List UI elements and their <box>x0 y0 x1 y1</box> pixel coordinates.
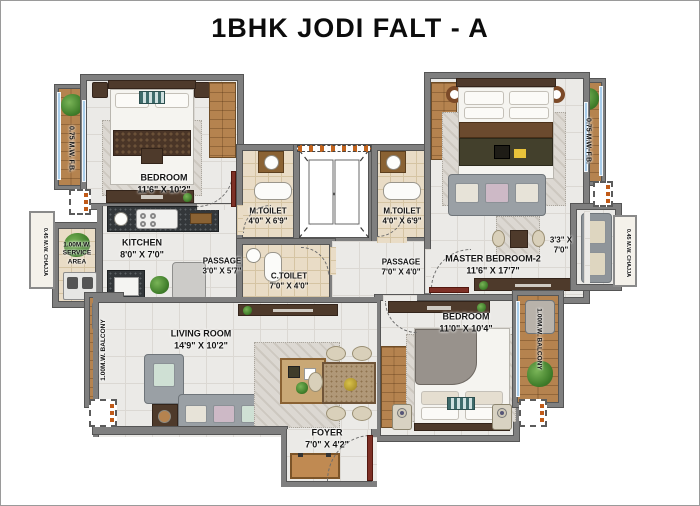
plant-icon <box>296 382 308 394</box>
chair <box>308 372 323 392</box>
window-strip <box>82 100 86 182</box>
door-leaf <box>231 171 236 207</box>
laptop <box>494 145 510 159</box>
chajja-left-label: 0.45 M.W. CHAJJA <box>41 228 47 276</box>
burner <box>150 213 156 219</box>
nightstand <box>92 82 108 98</box>
vanity <box>380 151 406 173</box>
toilet-wc <box>254 182 292 200</box>
m-toilet-right-label: M.TOILET4'0" X 6'9" <box>383 207 422 228</box>
cushion <box>515 183 539 203</box>
service-area-label: 1.00M.W.SERVICEAREA <box>63 241 91 266</box>
pillow <box>509 107 549 119</box>
duct-box <box>89 399 117 427</box>
duct-box <box>593 181 613 207</box>
balcony-right-label: 1.00M.W. BALCONY <box>535 308 542 369</box>
washer-door <box>67 277 78 289</box>
sink <box>386 155 401 170</box>
chair <box>492 230 505 247</box>
accent-pillow <box>139 91 165 104</box>
wardrobe <box>209 82 236 158</box>
tv-console <box>238 304 338 316</box>
washer-door <box>82 277 93 289</box>
bed-blanket <box>415 329 477 385</box>
window-strip <box>516 301 520 397</box>
bed-runner <box>459 122 553 138</box>
cushion-yellow <box>514 149 526 158</box>
bench-knob <box>326 453 331 457</box>
bed-headboard <box>108 80 196 89</box>
cushion <box>185 405 207 423</box>
bed <box>458 87 554 179</box>
burner <box>150 221 156 227</box>
niche-dims-label: 3'3" X7'0" <box>550 236 572 257</box>
centerpiece <box>344 378 357 391</box>
lift-duct-strip <box>297 145 371 152</box>
speaker <box>392 404 412 430</box>
bedroom1-label: BEDROOM11'6" X 10'2" <box>137 172 190 195</box>
opening <box>377 237 407 243</box>
bed-headboard <box>456 78 556 87</box>
table-item <box>288 366 300 378</box>
dining-table <box>322 362 376 404</box>
bench-knob <box>298 453 303 457</box>
tray <box>158 410 171 423</box>
wall <box>93 427 287 434</box>
sink <box>264 155 279 170</box>
kitchen-sink <box>114 212 128 226</box>
pillow <box>509 91 549 105</box>
bedroom2-label: BEDROOM11'0" X 10'4" <box>439 311 492 334</box>
nightstand <box>194 82 210 98</box>
door-leaf <box>429 287 469 293</box>
pillow <box>464 107 504 119</box>
living-room-label: LIVING ROOM14'9" X 10'2" <box>171 328 232 351</box>
opening <box>330 247 336 275</box>
room-living <box>93 297 377 437</box>
chair <box>326 346 346 361</box>
cushion <box>213 405 235 423</box>
passage-right-label: PASSAGE7'0" X 4'0" <box>382 258 421 279</box>
foyer-label: FOYER7'0" X 4'2" <box>305 427 349 450</box>
chajja-right-label: 0.45 M.W. CHAJJA <box>624 229 630 277</box>
master-bedroom2-label: MASTER BEDROOM-211'6" X 17'7" <box>445 253 541 276</box>
passage-left-label: PASSAGE3'0" X 5'7" <box>203 257 242 278</box>
window-strip <box>599 86 603 176</box>
spice-tray <box>190 213 212 224</box>
chair <box>352 406 372 421</box>
opening <box>584 211 590 283</box>
chair <box>352 346 372 361</box>
chair <box>532 230 545 247</box>
floorplan-image: 1BHK JODI FALT - A 0.45 M.W. CHAJJA 0.45… <box>0 0 700 506</box>
c-toilet-label: C.TOILET7'0" X 4'0" <box>270 272 309 293</box>
plant-icon <box>243 306 252 315</box>
fridge <box>172 262 206 300</box>
tv <box>515 284 551 287</box>
tv <box>273 309 313 312</box>
vanity <box>258 151 284 173</box>
toilet-wc <box>383 182 421 200</box>
balcony-left-label: 1.00M.W. BALCONY <box>101 319 108 380</box>
cushion <box>485 183 509 203</box>
burner <box>140 213 146 219</box>
bed <box>110 89 194 185</box>
entrance-door <box>367 435 373 481</box>
lift-shaft <box>294 145 374 243</box>
duct-box <box>519 399 547 427</box>
accent-pillow <box>447 397 475 410</box>
chajja-right-box: 0.45 M.W. CHAJJA <box>613 215 637 287</box>
fb-left-label: 0.75 M.W. F.B. <box>68 126 75 172</box>
coffee-table <box>510 230 528 248</box>
fb-right-label: 0.75 M.W. F.B. <box>585 118 592 164</box>
lift-cross-icon <box>299 150 369 238</box>
duct-box <box>69 189 91 215</box>
cushion <box>153 363 175 387</box>
cushion <box>455 183 479 203</box>
plant-icon <box>479 281 488 290</box>
chajja-left-box: 0.45 M.W. CHAJJA <box>29 211 55 289</box>
m-toilet-left-label: M.TOILET4'0" X 6'9" <box>249 207 288 228</box>
sink <box>246 248 261 263</box>
tv-console <box>474 278 586 291</box>
speaker <box>492 404 512 430</box>
burner <box>140 221 146 227</box>
dresser-item <box>427 306 451 310</box>
bed-blanket <box>459 138 553 166</box>
bed-runner <box>141 148 163 164</box>
plant-icon <box>150 276 169 294</box>
pillow <box>464 91 504 105</box>
chair <box>326 406 346 421</box>
plant-icon <box>61 94 83 116</box>
sofa <box>448 174 546 216</box>
stove <box>136 209 178 229</box>
plan-title: 1BHK JODI FALT - A <box>1 13 699 44</box>
kitchen-label: KITCHEN8'0" X 7'0" <box>120 237 164 260</box>
